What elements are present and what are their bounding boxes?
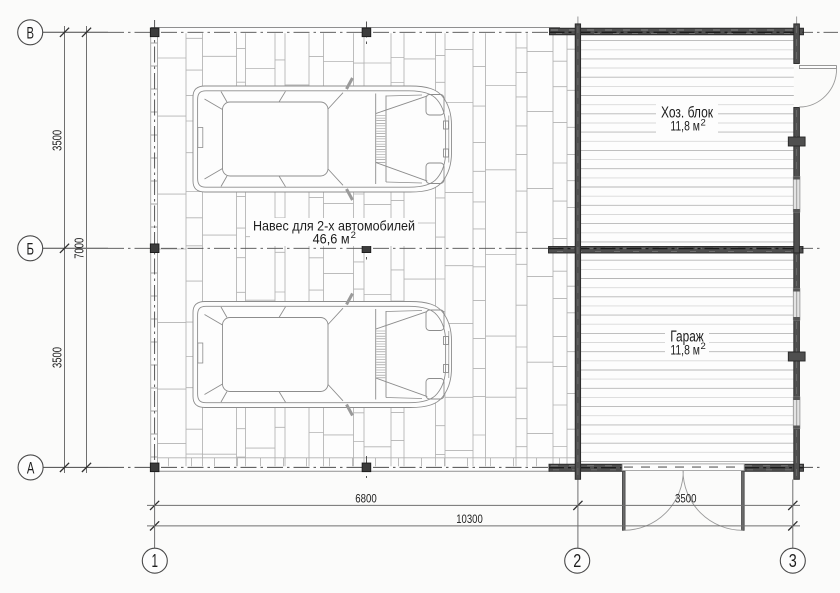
- svg-text:46,6 м: 46,6 м: [313, 230, 350, 246]
- svg-text:3: 3: [789, 551, 797, 571]
- svg-text:Б: Б: [26, 239, 34, 258]
- svg-text:2: 2: [573, 551, 581, 571]
- svg-text:2: 2: [701, 341, 706, 352]
- svg-text:11,8 м: 11,8 м: [670, 118, 700, 133]
- svg-text:В: В: [26, 23, 34, 42]
- svg-text:11,8 м: 11,8 м: [670, 342, 700, 357]
- svg-text:2: 2: [351, 230, 356, 241]
- svg-text:А: А: [27, 458, 35, 477]
- svg-text:3500: 3500: [50, 347, 65, 368]
- svg-text:1: 1: [152, 551, 159, 571]
- svg-text:10300: 10300: [456, 512, 483, 526]
- svg-text:2: 2: [701, 117, 706, 128]
- svg-text:6800: 6800: [355, 492, 377, 506]
- svg-text:7000: 7000: [72, 238, 87, 259]
- svg-text:3500: 3500: [675, 492, 697, 506]
- svg-text:3500: 3500: [50, 130, 65, 151]
